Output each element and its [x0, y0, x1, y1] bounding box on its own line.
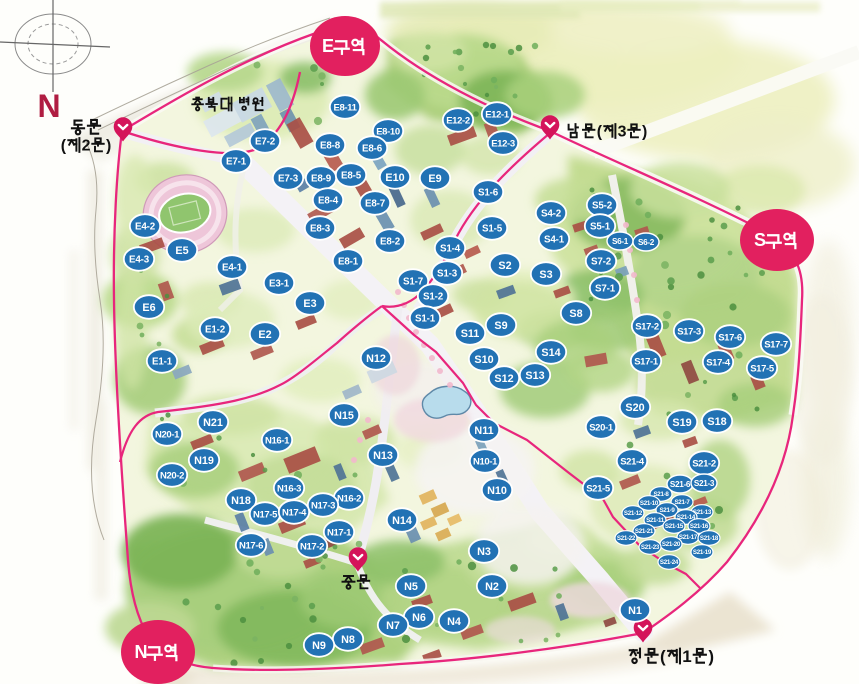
svg-text:E8-2: E8-2 — [380, 236, 401, 247]
svg-text:S6-2: S6-2 — [638, 238, 655, 247]
svg-text:N17-5: N17-5 — [253, 509, 278, 520]
svg-text:S1-4: S1-4 — [440, 243, 461, 254]
svg-text:S7-2: S7-2 — [591, 256, 612, 267]
svg-text:N11: N11 — [474, 425, 493, 437]
svg-text:S17-7: S17-7 — [764, 339, 788, 350]
svg-text:N17-6: N17-6 — [239, 540, 263, 551]
svg-text:E10: E10 — [385, 172, 404, 184]
svg-text:S20: S20 — [625, 402, 644, 414]
svg-text:E8-9: E8-9 — [311, 173, 332, 184]
svg-text:E3-1: E3-1 — [269, 278, 290, 289]
svg-text:S13: S13 — [525, 370, 544, 382]
svg-text:S1-3: S1-3 — [437, 268, 458, 279]
svg-text:N4: N4 — [447, 616, 461, 628]
svg-text:E8-7: E8-7 — [365, 198, 386, 209]
svg-text:E12-1: E12-1 — [485, 109, 510, 120]
svg-text:S1-1: S1-1 — [415, 313, 436, 324]
svg-text:N10-1: N10-1 — [473, 456, 498, 467]
svg-text:S17-1: S17-1 — [634, 356, 659, 367]
svg-text:E4-3: E4-3 — [129, 254, 150, 265]
svg-text:N13: N13 — [373, 450, 393, 462]
svg-text:S17-4: S17-4 — [706, 357, 731, 368]
svg-text:S20-1: S20-1 — [589, 422, 614, 433]
svg-text:S1-7: S1-7 — [403, 276, 424, 287]
svg-text:E8-11: E8-11 — [333, 102, 357, 113]
svg-text:(: ( — [597, 123, 603, 140]
svg-text:S17-6: S17-6 — [718, 332, 742, 343]
svg-text:S21-3: S21-3 — [694, 479, 715, 488]
svg-text:E8-3: E8-3 — [310, 223, 331, 234]
svg-text:S21-11: S21-11 — [646, 517, 665, 524]
svg-text:S2: S2 — [498, 260, 511, 272]
svg-text:S10: S10 — [474, 354, 493, 366]
svg-text:N18: N18 — [231, 495, 251, 507]
svg-text:N17-3: N17-3 — [311, 500, 335, 511]
svg-text:N17-2: N17-2 — [300, 541, 324, 552]
svg-text:S5-2: S5-2 — [592, 200, 613, 211]
svg-text:S3: S3 — [539, 269, 552, 281]
svg-text:N17-4: N17-4 — [282, 507, 307, 518]
svg-text:): ) — [106, 137, 111, 154]
svg-text:N16-3: N16-3 — [277, 483, 301, 494]
svg-text:N14: N14 — [392, 515, 412, 527]
svg-text:N7: N7 — [386, 620, 400, 632]
svg-text:S18: S18 — [707, 416, 726, 428]
svg-text:S4-1: S4-1 — [544, 234, 565, 245]
svg-text:S17-2: S17-2 — [635, 321, 659, 332]
svg-text:S21-19: S21-19 — [693, 549, 712, 556]
svg-text:S21-23: S21-23 — [641, 544, 660, 551]
svg-text:N9: N9 — [312, 640, 326, 652]
svg-text:E1-1: E1-1 — [152, 356, 173, 367]
svg-text:S: S — [754, 230, 766, 250]
svg-text:1: 1 — [682, 647, 691, 666]
svg-text:N21: N21 — [203, 417, 223, 429]
svg-text:E6: E6 — [142, 302, 155, 314]
svg-text:S19: S19 — [672, 417, 691, 429]
svg-text:S21-4: S21-4 — [620, 456, 645, 467]
svg-text:N16-2: N16-2 — [337, 493, 361, 504]
svg-text:N5: N5 — [404, 581, 418, 593]
svg-text:E8-10: E8-10 — [376, 126, 400, 137]
svg-text:N8: N8 — [341, 634, 355, 646]
svg-text:N1: N1 — [628, 605, 642, 617]
svg-text:S21-15: S21-15 — [665, 523, 684, 530]
svg-text:S11: S11 — [461, 328, 480, 340]
svg-text:N: N — [135, 642, 148, 662]
svg-text:(: ( — [61, 137, 67, 154]
svg-text:S1-2: S1-2 — [423, 291, 444, 302]
svg-text:N3: N3 — [477, 546, 491, 558]
svg-text:N15: N15 — [334, 410, 354, 422]
svg-text:S17-5: S17-5 — [750, 363, 775, 374]
svg-text:E9: E9 — [428, 173, 441, 185]
svg-text:S12: S12 — [494, 373, 513, 385]
svg-text:E3: E3 — [303, 298, 316, 310]
svg-text:E4-1: E4-1 — [222, 262, 243, 273]
svg-text:S8: S8 — [569, 308, 582, 320]
svg-text:): ) — [708, 647, 714, 666]
svg-text:E12-2: E12-2 — [446, 115, 470, 126]
svg-text:(: ( — [660, 647, 666, 666]
svg-text:N10: N10 — [487, 485, 507, 497]
svg-text:S6-1: S6-1 — [612, 237, 629, 246]
svg-text:S21-5: S21-5 — [586, 483, 611, 494]
svg-text:E7-1: E7-1 — [226, 156, 247, 167]
svg-text:E7-3: E7-3 — [278, 173, 299, 184]
svg-text:E12-3: E12-3 — [491, 138, 515, 149]
svg-text:N2: N2 — [485, 581, 499, 593]
svg-text:S21-21: S21-21 — [635, 528, 654, 535]
svg-text:S21-2: S21-2 — [692, 458, 716, 469]
svg-text:S21-9: S21-9 — [659, 507, 675, 514]
svg-text:): ) — [642, 123, 647, 140]
svg-text:S1-5: S1-5 — [482, 223, 503, 234]
svg-text:S4-2: S4-2 — [541, 208, 562, 219]
svg-text:S21-6: S21-6 — [670, 480, 691, 489]
svg-text:S9: S9 — [494, 320, 507, 332]
svg-text:S21-18: S21-18 — [700, 535, 719, 542]
svg-text:2: 2 — [82, 137, 91, 154]
svg-text:E5: E5 — [175, 245, 188, 257]
svg-text:S7-1: S7-1 — [595, 283, 616, 294]
svg-text:S21-22: S21-22 — [617, 535, 636, 542]
svg-text:S21-7: S21-7 — [674, 499, 690, 506]
svg-text:E8-8: E8-8 — [320, 140, 341, 151]
svg-text:N6: N6 — [412, 612, 426, 624]
svg-text:N20-2: N20-2 — [160, 470, 184, 481]
svg-text:E7-2: E7-2 — [255, 136, 276, 147]
svg-text:E8-1: E8-1 — [338, 256, 359, 267]
svg-text:S21-24: S21-24 — [660, 559, 679, 566]
svg-text:S21-10: S21-10 — [640, 500, 659, 507]
svg-text:N16-1: N16-1 — [265, 435, 290, 446]
svg-text:S21-12: S21-12 — [624, 510, 643, 517]
svg-text:E8-4: E8-4 — [318, 195, 339, 206]
svg-text:E1-2: E1-2 — [205, 324, 226, 335]
svg-text:S21-20: S21-20 — [662, 541, 681, 548]
svg-text:E: E — [322, 36, 334, 56]
svg-text:N17-1: N17-1 — [327, 527, 352, 538]
svg-text:S21-16: S21-16 — [690, 523, 709, 530]
svg-text:S14: S14 — [541, 347, 560, 359]
svg-text:S17-3: S17-3 — [677, 326, 701, 337]
svg-text:3: 3 — [618, 123, 627, 140]
svg-text:E8-5: E8-5 — [341, 170, 362, 181]
svg-text:E8-6: E8-6 — [362, 143, 383, 154]
svg-text:S1-6: S1-6 — [478, 187, 499, 198]
svg-text:S5-1: S5-1 — [590, 221, 611, 232]
svg-text:N19: N19 — [194, 455, 214, 467]
svg-text:N12: N12 — [366, 353, 386, 365]
svg-text:E2: E2 — [258, 329, 271, 341]
svg-text:S21-17: S21-17 — [679, 534, 698, 541]
svg-text:N: N — [37, 88, 60, 124]
svg-text:N20-1: N20-1 — [155, 429, 180, 440]
svg-text:E4-2: E4-2 — [135, 221, 156, 232]
